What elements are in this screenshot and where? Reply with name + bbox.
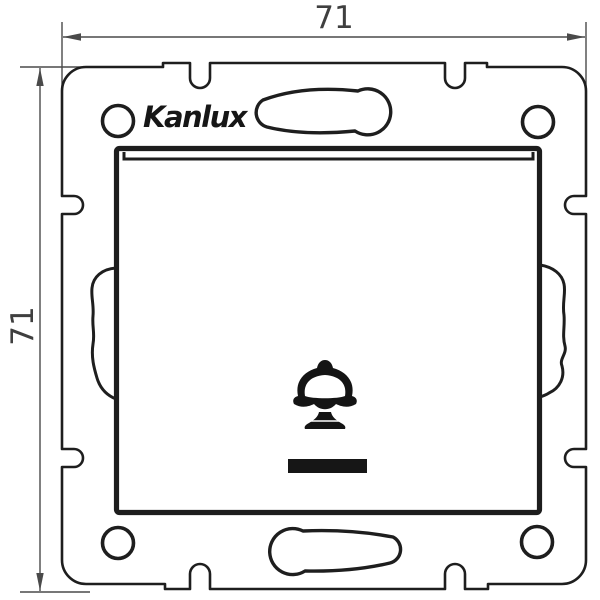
mounting-hole-top-left: [103, 106, 134, 137]
arrow-right-icon: [567, 33, 585, 41]
arrow-left-icon: [63, 33, 81, 41]
technical-drawing-canvas: 71 71 Kanlux: [0, 0, 600, 600]
brand-logo-text: Kanlux: [143, 100, 249, 134]
arrow-down-icon: [36, 573, 43, 591]
adjustment-slot-top: [256, 89, 391, 135]
mounting-hole-bottom-right: [522, 527, 553, 558]
mounting-hole-bottom-left: [103, 528, 134, 559]
switch-drawing: 71 71 Kanlux: [0, 0, 600, 600]
indicator-bar: [288, 459, 367, 473]
width-dimension-label: 71: [314, 0, 353, 36]
arrow-up-icon: [36, 68, 43, 86]
height-dimension-label: 71: [5, 306, 41, 345]
frame-opening: [117, 149, 540, 513]
mounting-hole-top-right: [523, 107, 554, 138]
side-claw-slot-right: [540, 265, 565, 397]
